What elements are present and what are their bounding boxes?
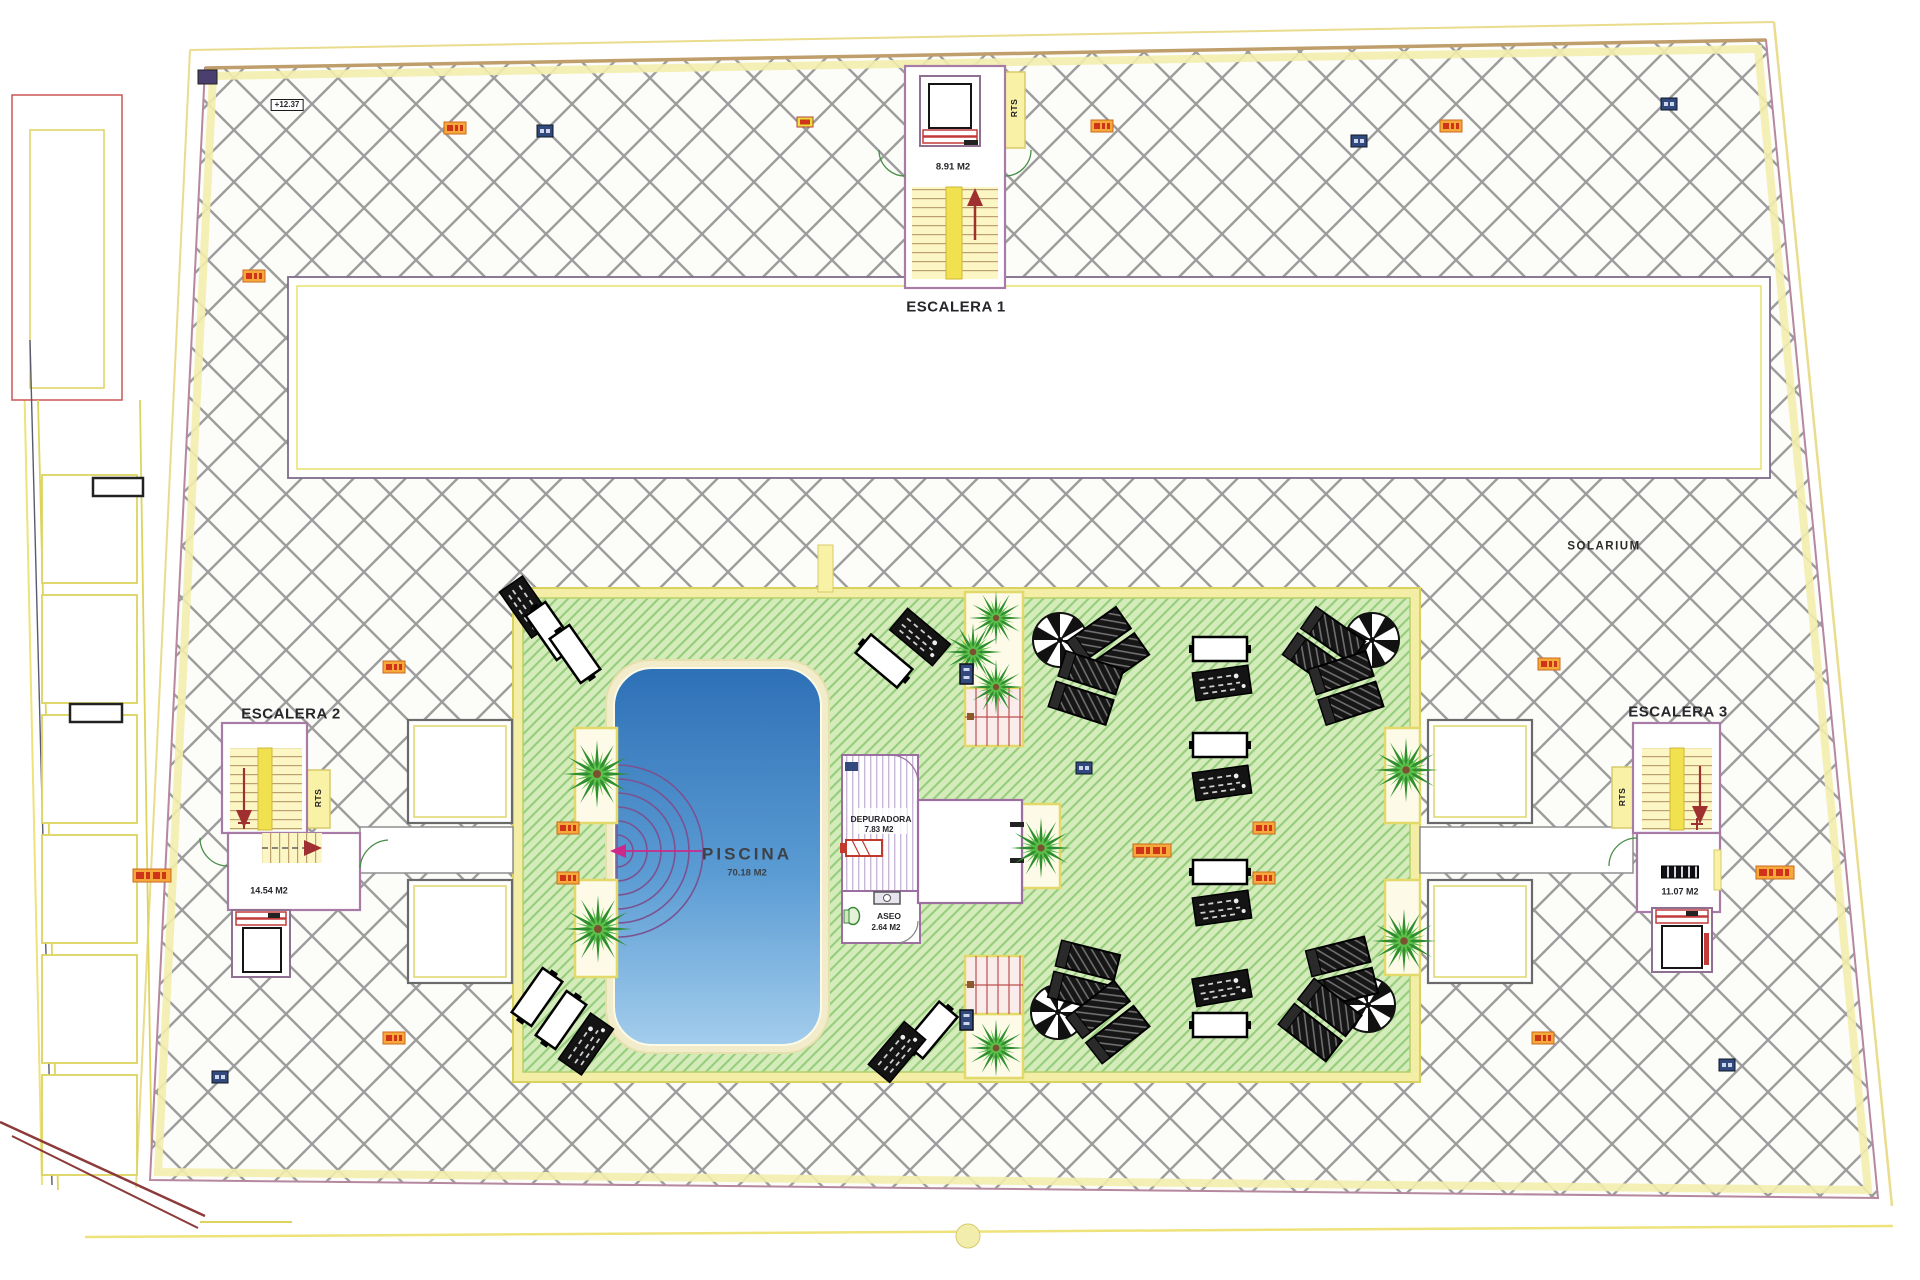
depuradora-label: DEPURADORA bbox=[851, 815, 912, 824]
aseo-area-label: 2.64 M2 bbox=[872, 924, 901, 932]
reference-tag-icon bbox=[1351, 135, 1367, 147]
reference-tag-icon bbox=[1440, 120, 1462, 132]
rts-label: RTS bbox=[1618, 788, 1627, 807]
reference-tag-icon bbox=[557, 822, 579, 834]
rts-label: RTS bbox=[314, 789, 323, 808]
shade-structure bbox=[918, 800, 1024, 903]
staircase bbox=[912, 187, 998, 279]
door-opening-icon bbox=[93, 478, 143, 496]
lower-roof-void bbox=[288, 277, 1770, 478]
reference-tag-icon bbox=[845, 762, 858, 771]
escalera1-title: ESCALERA 1 bbox=[906, 300, 1005, 315]
piscina-area-label: 70.18 M2 bbox=[727, 868, 767, 878]
aseo-label: ASEO bbox=[877, 912, 901, 921]
escalera3-title: ESCALERA 3 bbox=[1628, 705, 1727, 720]
reference-tag-icon bbox=[243, 270, 265, 282]
pump-machine-icon bbox=[840, 840, 882, 856]
elevator-icon bbox=[232, 910, 290, 977]
reference-tag-icon bbox=[1719, 1059, 1735, 1071]
elevator-icon bbox=[1652, 908, 1712, 972]
reference-tag-icon bbox=[133, 869, 171, 882]
escalera2-area-label: 14.54 M2 bbox=[250, 887, 288, 896]
reference-tag-icon bbox=[960, 1010, 973, 1030]
reference-tag-icon bbox=[960, 664, 973, 684]
escalera3-area-label: 11.07 M2 bbox=[1661, 888, 1698, 897]
depuradora-area-label: 7.83 M2 bbox=[865, 826, 894, 834]
piscina-label: PISCINA bbox=[702, 846, 792, 863]
floor-plan-page: ESCALERA 1 ESCALERA 2 ESCALERA 3 SOLARIU… bbox=[0, 0, 1920, 1280]
reference-tag-icon bbox=[383, 1032, 405, 1044]
reference-tag-icon bbox=[1253, 872, 1275, 884]
reference-tag-icon bbox=[557, 872, 579, 884]
escalera3-room-tag bbox=[1661, 866, 1699, 879]
sun-lounger-icon bbox=[1189, 1013, 1251, 1037]
staircase bbox=[1642, 748, 1712, 830]
solarium-label: SOLARIUM bbox=[1567, 541, 1640, 553]
door-opening-icon bbox=[70, 704, 122, 722]
sun-lounger-icon bbox=[1189, 860, 1251, 884]
reference-tag-icon bbox=[383, 661, 405, 673]
reference-tag-icon bbox=[1091, 120, 1113, 132]
rts-label: RTS bbox=[1010, 99, 1019, 118]
elevator-icon bbox=[920, 76, 980, 146]
escalera2-title: ESCALERA 2 bbox=[241, 707, 340, 722]
reference-tag-icon bbox=[198, 70, 217, 84]
reference-tag-icon bbox=[1538, 658, 1560, 670]
level-marker: +12.37 bbox=[271, 99, 304, 111]
escalera1-area-label: 8.91 M2 bbox=[936, 162, 970, 172]
sun-lounger-icon bbox=[1189, 733, 1251, 757]
reference-tag-icon bbox=[797, 117, 813, 127]
reference-tag-icon bbox=[1756, 866, 1794, 879]
reference-tag-icon bbox=[1076, 762, 1092, 774]
reference-tag-icon bbox=[1661, 98, 1677, 110]
reference-tag-icon bbox=[1253, 822, 1275, 834]
floor-plan-drawing bbox=[0, 0, 1920, 1280]
reference-tag-icon bbox=[444, 122, 466, 134]
reference-tag-icon bbox=[537, 125, 553, 137]
sun-lounger-icon bbox=[1189, 637, 1251, 661]
reference-tag-icon bbox=[1133, 844, 1171, 857]
reference-tag-icon bbox=[1532, 1032, 1554, 1044]
drain-mark-icon bbox=[956, 1224, 980, 1248]
reference-tag-icon bbox=[212, 1071, 228, 1083]
